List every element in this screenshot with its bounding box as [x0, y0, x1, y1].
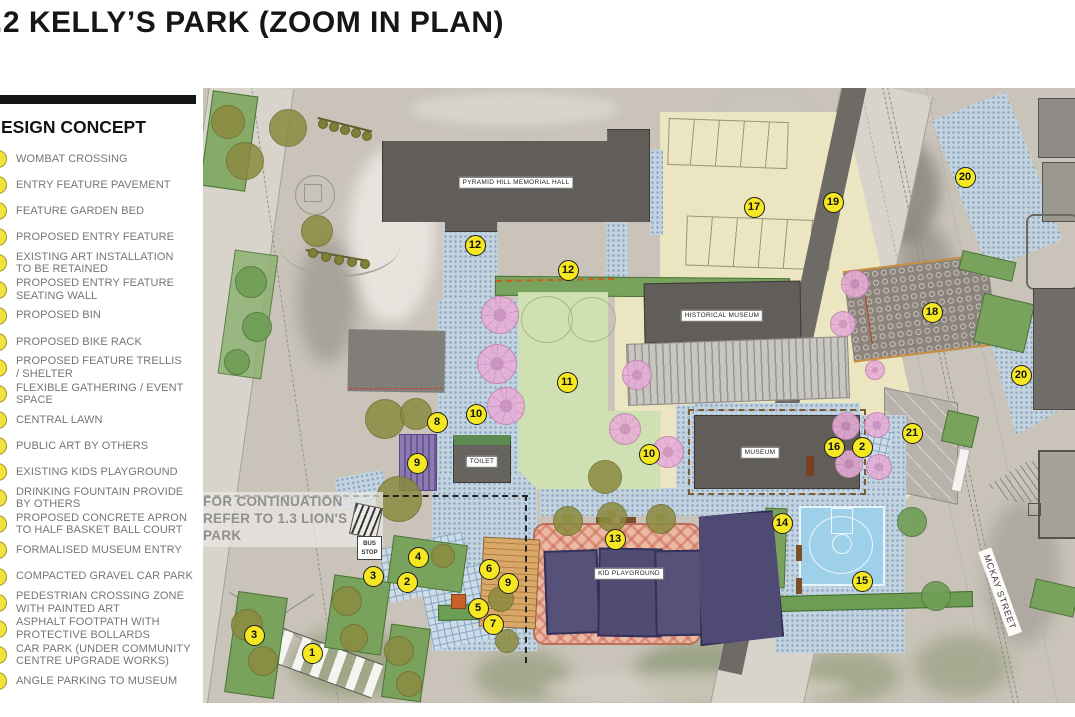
legend-item: PEDESTRIAN CROSSING ZONE WITH PAINTED AR…	[0, 590, 200, 616]
legend-item: CAR PARK (UNDER COMMUNITY CENTRE UPGRADE…	[0, 642, 200, 668]
legend-item-label: COMPACTED GRAVEL CAR PARK	[16, 570, 193, 582]
legend-item-label: CAR PARK (UNDER COMMUNITY CENTRE UPGRADE…	[16, 643, 191, 668]
legend-item: PROPOSED FEATURE TRELLIS / SHELTER	[0, 355, 200, 381]
legend-item: PROPOSED ENTRY FEATURE	[0, 224, 200, 250]
legend-item: WOMBAT CROSSING	[0, 146, 200, 172]
legend-number-circle	[0, 515, 7, 533]
legend-item: FEATURE GARDEN BED	[0, 198, 200, 224]
legend-item: FLEXIBLE GATHERING / EVENT SPACE	[0, 381, 200, 407]
plan-marker-20: 20	[955, 167, 976, 188]
legend-item-label: ANGLE PARKING TO MUSEUM	[16, 675, 177, 687]
legend-number-circle	[0, 463, 7, 481]
plan-marker-18: 18	[922, 302, 943, 323]
memorial-hall-label: PYRAMID HILL MEMORIAL HALL	[458, 177, 573, 189]
plan-marker-3: 3	[244, 625, 265, 646]
legend-item: ANGLE PARKING TO MUSEUM	[0, 668, 200, 694]
plan-marker-21: 21	[902, 423, 923, 444]
legend-item: DRINKING FOUNTAIN PROVIDE BY OTHERS	[0, 485, 200, 511]
legend-item-label: PEDESTRIAN CROSSING ZONE WITH PAINTED AR…	[16, 590, 184, 615]
site-plan-canvas: PYRAMID HILL MEMORIAL HALL HISTORICAL MU…	[203, 88, 1075, 703]
legend-number-circle	[0, 202, 7, 220]
legend-item: FORMALISED MUSEUM ENTRY	[0, 537, 200, 563]
legend-item-label: ASPHALT FOOTPATH WITH PROTECTIVE BOLLARD…	[16, 616, 160, 641]
legend-number-circle	[0, 228, 7, 246]
plan-marker-7: 7	[483, 614, 504, 635]
legend-item: PROPOSED BIKE RACK	[0, 329, 200, 355]
page-title: .2 KELLY’S PARK (ZOOM IN PLAN)	[0, 6, 504, 40]
plan-marker-14: 14	[772, 513, 793, 534]
legend-item: CENTRAL LAWN	[0, 407, 200, 433]
legend-number-circle	[0, 568, 7, 586]
legend-number-circle	[0, 333, 7, 351]
plan-marker-1: 1	[302, 643, 323, 664]
toilet-label: TOILET	[466, 456, 498, 468]
legend-item: ENTRY FEATURE PAVEMENT	[0, 172, 200, 198]
plan-marker-5: 5	[468, 598, 489, 619]
legend-item: PROPOSED CONCRETE APRON TO HALF BASKET B…	[0, 511, 200, 537]
kid-playground-label: KID PLAYGROUND	[594, 568, 664, 580]
plan-marker-12: 12	[558, 260, 579, 281]
legend-number-circle	[0, 594, 7, 612]
plan-marker-2: 2	[397, 572, 418, 593]
legend-number-circle	[0, 672, 7, 690]
legend-item-label: EXISTING KIDS PLAYGROUND	[16, 466, 178, 478]
plan-marker-15: 15	[852, 571, 873, 592]
legend-number-circle	[0, 489, 7, 507]
plan-marker-8: 8	[427, 412, 448, 433]
legend-item-label: ENTRY FEATURE PAVEMENT	[16, 179, 171, 191]
plan-marker-9: 9	[498, 573, 519, 594]
legend-items: WOMBAT CROSSINGENTRY FEATURE PAVEMENTFEA…	[0, 146, 200, 694]
plan-markers: 1212171920182011108910162211314154326957…	[203, 88, 1075, 703]
historical-museum-label: HISTORICAL MUSEUM	[681, 310, 763, 322]
legend-number-circle	[0, 254, 7, 272]
legend-number-circle	[0, 620, 7, 638]
legend-number-circle	[0, 411, 7, 429]
plan-marker-11: 11	[557, 372, 578, 393]
museum-label: MUSEUM	[741, 447, 780, 459]
legend-item-label: FORMALISED MUSEUM ENTRY	[16, 544, 182, 556]
legend-header: ESIGN CONCEPT	[1, 117, 200, 138]
plan-marker-2: 2	[852, 437, 873, 458]
plan-marker-9: 9	[407, 453, 428, 474]
plan-marker-6: 6	[479, 559, 500, 580]
legend-item-label: WOMBAT CROSSING	[16, 153, 128, 165]
legend-item: PUBLIC ART BY OTHERS	[0, 433, 200, 459]
legend-item: EXISTING KIDS PLAYGROUND	[0, 459, 200, 485]
legend-number-circle	[0, 646, 7, 664]
legend-item-label: PROPOSED CONCRETE APRON TO HALF BASKET B…	[16, 512, 187, 537]
legend-item-label: PROPOSED BIKE RACK	[16, 336, 142, 348]
legend-number-circle	[0, 150, 7, 168]
legend-item-label: DRINKING FOUNTAIN PROVIDE BY OTHERS	[16, 486, 183, 511]
legend-item-label: PROPOSED BIN	[16, 309, 101, 321]
legend-item-label: PUBLIC ART BY OTHERS	[16, 440, 148, 452]
legend-number-circle	[0, 307, 7, 325]
legend-number-circle	[0, 281, 7, 299]
plan-marker-4: 4	[408, 547, 429, 568]
plan-marker-19: 19	[823, 192, 844, 213]
legend-item-label: CENTRAL LAWN	[16, 414, 103, 426]
plan-marker-3: 3	[363, 566, 384, 587]
legend-item-label: FEATURE GARDEN BED	[16, 205, 144, 217]
plan-marker-13: 13	[605, 529, 626, 550]
legend-number-circle	[0, 541, 7, 559]
plan-marker-10: 10	[639, 444, 660, 465]
legend-header-bar	[0, 95, 196, 104]
plan-marker-10: 10	[466, 404, 487, 425]
legend-item-label: FLEXIBLE GATHERING / EVENT SPACE	[16, 382, 183, 407]
plan-marker-17: 17	[744, 197, 765, 218]
legend-number-circle	[0, 385, 7, 403]
plan-marker-12: 12	[465, 235, 486, 256]
legend-item: ASPHALT FOOTPATH WITH PROTECTIVE BOLLARD…	[0, 616, 200, 642]
legend-item: EXISTING ART INSTALLATION TO BE RETAINED	[0, 250, 200, 276]
legend-panel: ESIGN CONCEPT WOMBAT CROSSINGENTRY FEATU…	[0, 95, 200, 694]
legend-item-label: PROPOSED FEATURE TRELLIS / SHELTER	[16, 355, 182, 380]
legend-item: PROPOSED ENTRY FEATURE SEATING WALL	[0, 276, 200, 302]
legend-item: PROPOSED BIN	[0, 303, 200, 329]
site-plan: PYRAMID HILL MEMORIAL HALL HISTORICAL MU…	[203, 88, 1075, 703]
legend-item-label: PROPOSED ENTRY FEATURE	[16, 231, 174, 243]
legend-number-circle	[0, 359, 7, 377]
legend-item: COMPACTED GRAVEL CAR PARK	[0, 564, 200, 590]
legend-number-circle	[0, 437, 7, 455]
plan-marker-20: 20	[1011, 365, 1032, 386]
legend-item-label: PROPOSED ENTRY FEATURE SEATING WALL	[16, 277, 174, 302]
legend-number-circle	[0, 176, 7, 194]
legend-item-label: EXISTING ART INSTALLATION TO BE RETAINED	[16, 251, 174, 276]
plan-marker-16: 16	[824, 437, 845, 458]
